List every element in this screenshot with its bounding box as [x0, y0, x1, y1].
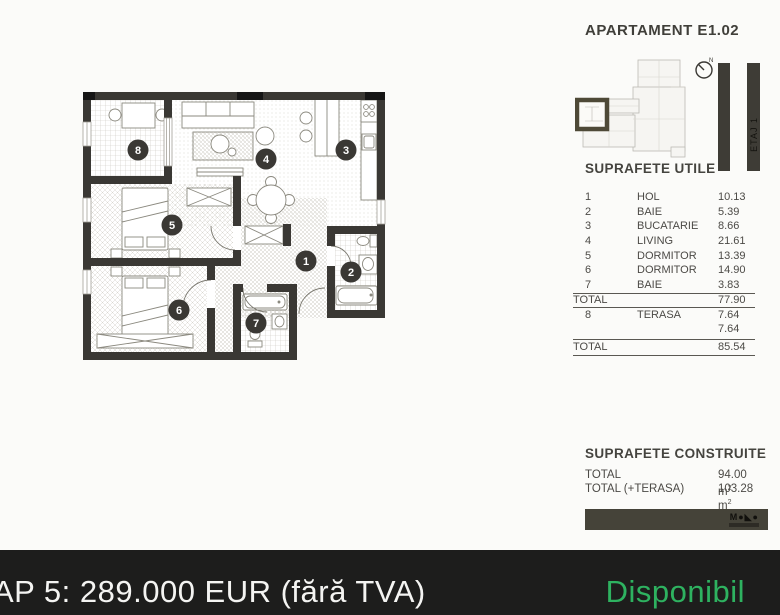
area-row: 5 DORMITOR 13.39 [573, 249, 755, 264]
area-row: 1 HOL 10.13 [573, 190, 755, 205]
suprafete-construite-title: SUPRAFETE CONSTRUITE [585, 446, 766, 461]
price-label: AP 5: 289.000 EUR (fără TVA) [0, 576, 426, 607]
area-row: 3 BUCATARIE 8.66 [573, 219, 755, 234]
compass-north-label: N [709, 58, 713, 64]
apartment-listing-bar[interactable]: AP 5: 289.000 EUR (fără TVA) Disponibil [0, 550, 780, 615]
room-badge-6: 6 [176, 305, 182, 317]
area-row: 6 DORMITOR 14.90 [573, 263, 755, 278]
room-badge-4: 4 [263, 154, 270, 166]
room-badge-7: 7 [253, 318, 259, 330]
apartment-title: APARTAMENT E1.02 [585, 22, 739, 39]
room-badge-3: 3 [343, 145, 349, 157]
keyplan: N [575, 57, 720, 169]
room-badge-2: 2 [348, 267, 354, 279]
availability-status: Disponibil [606, 576, 745, 607]
compass-icon: N [696, 58, 713, 78]
suprafete-utile-title: SUPRAFETE UTILE [585, 161, 716, 176]
area-row-terasa: 7.64 [573, 322, 755, 336]
room-badge-8: 8 [135, 145, 141, 157]
construite-table: TOTAL 94.00 m2 TOTAL (+TERASA) 103.28 m2 [585, 468, 755, 496]
area-row: 2 BAIE 5.39 [573, 205, 755, 220]
area-row: 4 LIVING 21.61 [573, 234, 755, 249]
area-row-terasa: 8 TERASA 7.64 [573, 308, 755, 322]
room-badge-5: 5 [169, 220, 175, 232]
room-badge-1: 1 [303, 256, 309, 268]
developer-logo-bar: M●◣● [585, 509, 768, 530]
floor-bar-left [718, 63, 730, 171]
total-utile-row: TOTAL 77.90 [573, 293, 755, 308]
apartment-sheet: 1 2 3 4 5 6 7 8 APARTAMENT E1.02 N [0, 0, 780, 615]
total-with-terasa-row: TOTAL 85.54 [573, 339, 755, 356]
floor-label: ETAJ 1 [749, 117, 759, 152]
areas-table: 1 HOL 10.13 2 BAIE 5.39 3 BUCATARIE 8.66… [573, 190, 755, 356]
floor-bar-right: ETAJ 1 [747, 63, 760, 171]
construite-row: TOTAL (+TERASA) 103.28 m2 [585, 482, 755, 496]
area-row: 7 BAIE 3.83 [573, 278, 755, 293]
construite-row: TOTAL 94.00 m2 [585, 468, 755, 482]
developer-logo-subline [729, 523, 759, 527]
floorplan: 1 2 3 4 5 6 7 8 [75, 80, 395, 370]
developer-logo: M●◣● [730, 513, 759, 522]
